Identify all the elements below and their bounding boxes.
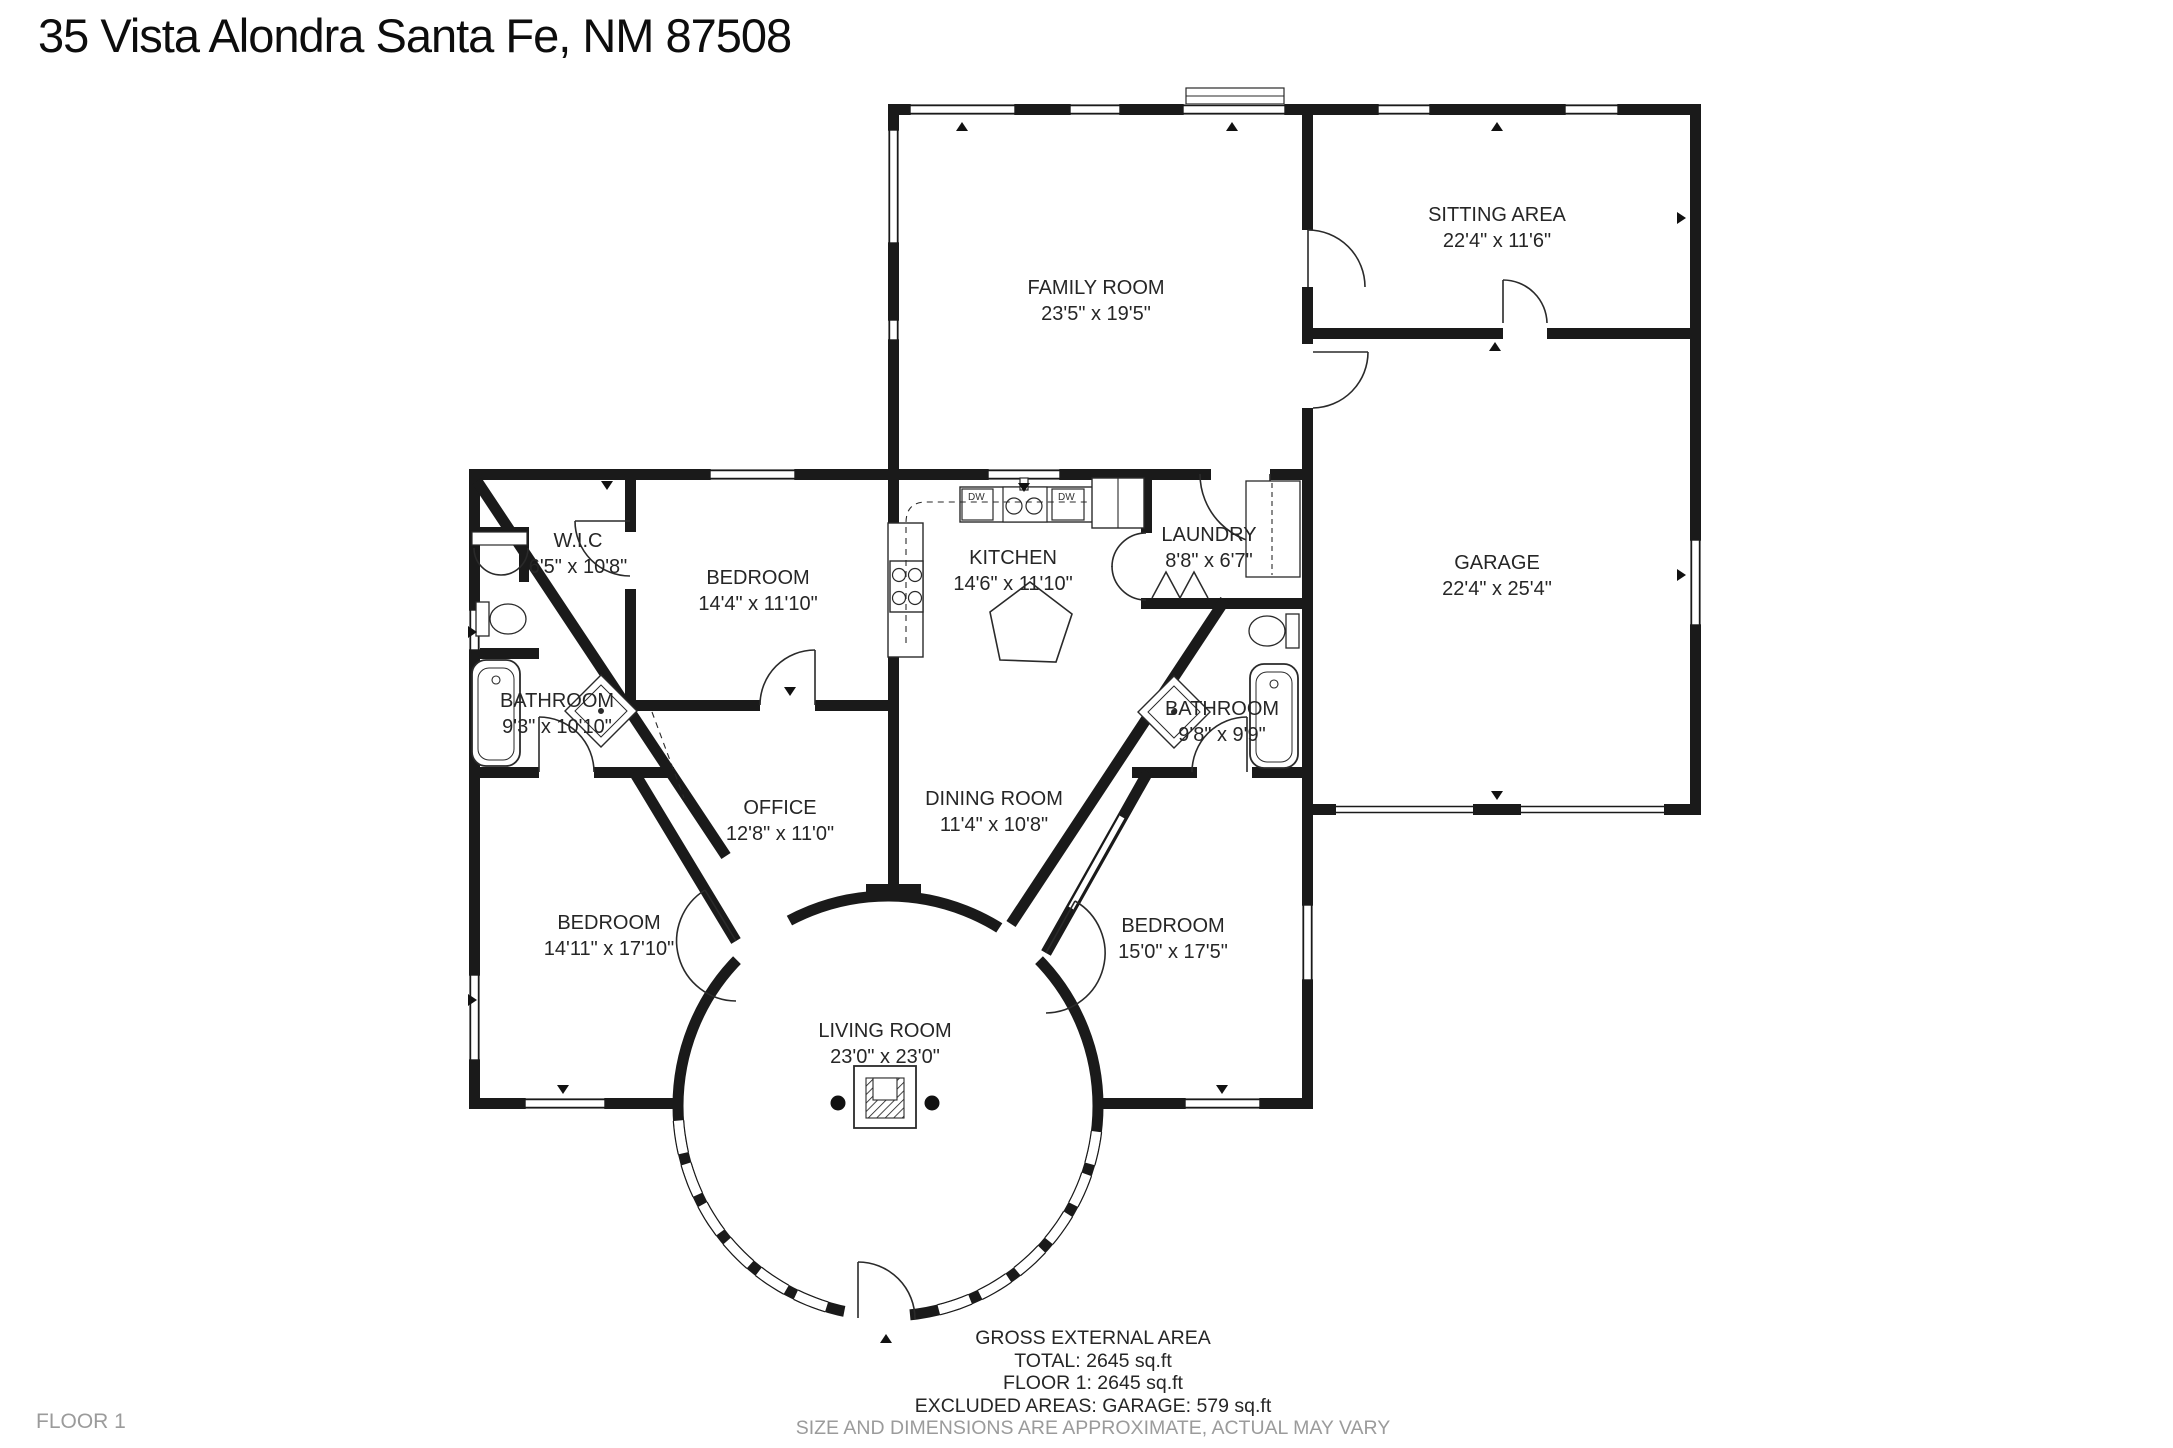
room-label-bathroom-right: BATHROOM9'8" x 9'9" bbox=[1165, 696, 1279, 748]
svg-text:DW: DW bbox=[1058, 492, 1075, 503]
area-summary: GROSS EXTERNAL AREA TOTAL: 2645 sq.ft FL… bbox=[796, 1327, 1391, 1440]
room-label-living-room: LIVING ROOM23'0" x 23'0" bbox=[818, 1018, 951, 1070]
dishwasher-left-icon: DW bbox=[962, 489, 993, 520]
disclaimer: SIZE AND DIMENSIONS ARE APPROXIMATE, ACT… bbox=[796, 1417, 1391, 1440]
floorplan-canvas: 35 Vista Alondra Santa Fe, NM 87508 bbox=[0, 0, 2173, 1448]
excluded-area: EXCLUDED AREAS: GARAGE: 579 sq.ft bbox=[796, 1395, 1391, 1418]
room-name: DINING ROOM bbox=[925, 788, 1063, 810]
room-dimensions: 14'6" x 11'10" bbox=[953, 571, 1072, 597]
room-label-laundry: LAUNDRY8'8" x 6'7" bbox=[1161, 522, 1256, 574]
room-dimensions: 23'5" x 19'5" bbox=[1027, 301, 1164, 327]
room-name: LAUNDRY bbox=[1161, 524, 1256, 546]
dishwasher-right-icon: DW bbox=[1052, 489, 1084, 520]
room-label-sitting-area: SITTING AREA22'4" x 11'6" bbox=[1428, 202, 1566, 254]
room-name: W.I.C bbox=[554, 530, 603, 552]
room-label-bathroom-left: BATHROOM9'3" x 10'10" bbox=[500, 688, 614, 740]
room-dimensions: 12'8" x 11'0" bbox=[726, 821, 834, 847]
entry-steps-icon bbox=[1186, 88, 1284, 104]
room-dimensions: 14'11" x 17'10" bbox=[544, 936, 674, 962]
room-label-bedroom-left: BEDROOM14'11" x 17'10" bbox=[544, 910, 674, 962]
room-name: BEDROOM bbox=[1121, 915, 1224, 937]
floorplan-svg: DW DW bbox=[0, 0, 2173, 1448]
room-name: FAMILY ROOM bbox=[1027, 277, 1164, 299]
room-name: OFFICE bbox=[743, 797, 816, 819]
room-dimensions: 9'8" x 9'9" bbox=[1165, 722, 1279, 748]
toilet-right-icon bbox=[1249, 614, 1299, 648]
room-dimensions: 8'8" x 6'7" bbox=[1161, 548, 1256, 574]
fridge-icon bbox=[1092, 478, 1144, 528]
room-label-office: OFFICE12'8" x 11'0" bbox=[726, 795, 834, 847]
room-label-kitchen: KITCHEN14'6" x 11'10" bbox=[953, 545, 1072, 597]
room-dimensions: 14'4" x 11'10" bbox=[698, 591, 817, 617]
floor1-area: FLOOR 1: 2645 sq.ft bbox=[796, 1372, 1391, 1395]
room-dimensions: 15'0" x 17'5" bbox=[1118, 939, 1228, 965]
room-dimensions: 23'0" x 23'0" bbox=[818, 1044, 951, 1070]
closet-shelf-icon bbox=[472, 532, 527, 545]
room-label-wic: W.I.C6'5" x 10'8" bbox=[529, 528, 628, 580]
gross-area-title: GROSS EXTERNAL AREA bbox=[796, 1327, 1391, 1350]
room-label-bedroom-upper: BEDROOM14'4" x 11'10" bbox=[698, 565, 817, 617]
room-name: BEDROOM bbox=[706, 567, 809, 589]
room-dimensions: 6'5" x 10'8" bbox=[529, 554, 628, 580]
room-label-family-room: FAMILY ROOM23'5" x 19'5" bbox=[1027, 275, 1164, 327]
room-label-dining-room: DINING ROOM11'4" x 10'8" bbox=[925, 786, 1063, 838]
room-name: BATHROOM bbox=[1165, 698, 1279, 720]
svg-text:DW: DW bbox=[968, 492, 985, 503]
room-label-garage: GARAGE22'4" x 25'4" bbox=[1442, 550, 1552, 602]
room-name: BATHROOM bbox=[500, 690, 614, 712]
toilet-left-icon bbox=[476, 602, 526, 636]
room-dimensions: 11'4" x 10'8" bbox=[925, 812, 1063, 838]
floor-label: FLOOR 1 bbox=[36, 1410, 126, 1434]
room-name: SITTING AREA bbox=[1428, 204, 1566, 226]
room-name: GARAGE bbox=[1454, 552, 1540, 574]
room-name: BEDROOM bbox=[557, 912, 660, 934]
total-area: TOTAL: 2645 sq.ft bbox=[796, 1350, 1391, 1373]
room-dimensions: 22'4" x 25'4" bbox=[1442, 576, 1552, 602]
room-dimensions: 9'3" x 10'10" bbox=[500, 714, 614, 740]
room-name: LIVING ROOM bbox=[818, 1020, 951, 1042]
room-dimensions: 22'4" x 11'6" bbox=[1428, 228, 1566, 254]
room-name: KITCHEN bbox=[969, 547, 1057, 569]
room-label-bedroom-right: BEDROOM15'0" x 17'5" bbox=[1118, 913, 1228, 965]
